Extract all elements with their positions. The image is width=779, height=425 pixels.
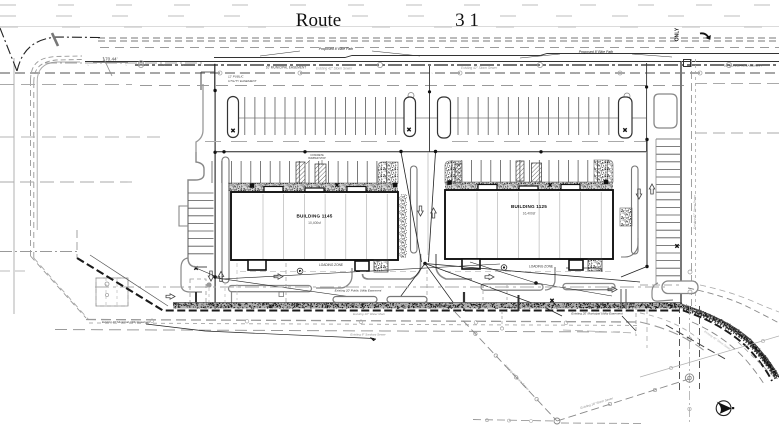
svg-text:›: › <box>479 72 480 76</box>
svg-text:10' MUNICIPAL EASEMENT: 10' MUNICIPAL EASEMENT <box>266 66 307 70</box>
svg-text:LOADING ZONE: LOADING ZONE <box>529 265 553 269</box>
svg-text:›: › <box>335 72 336 76</box>
svg-text:Existing 10" Water Main: Existing 10" Water Main <box>353 312 385 316</box>
svg-text:UTILITY EASEMENT: UTILITY EASEMENT <box>228 79 258 83</box>
svg-text:ONLY: ONLY <box>675 27 681 41</box>
svg-text:Route: Route <box>296 10 341 31</box>
svg-text:10' MUNICIPAL EASEMENT: 10' MUNICIPAL EASEMENT <box>724 64 762 68</box>
svg-text:Proposed 8' Bike Path: Proposed 8' Bike Path <box>319 47 354 51</box>
svg-text:Proposed 8' Bike Path: Proposed 8' Bike Path <box>579 50 614 54</box>
svg-text:Existing 42" Storm Sewer: Existing 42" Storm Sewer <box>693 194 697 229</box>
svg-text:›: › <box>575 72 576 76</box>
svg-text:Existing 42" Storm Sewer: Existing 42" Storm Sewer <box>461 66 498 70</box>
svg-text:10,400sf: 10,400sf <box>308 221 321 225</box>
svg-text:3 1: 3 1 <box>455 10 479 31</box>
svg-text:›: › <box>182 63 183 67</box>
svg-text:›: › <box>87 63 88 67</box>
svg-text:Existing 20' Municipal Utility: Existing 20' Municipal Utility Easement <box>102 320 150 324</box>
svg-text:›: › <box>125 63 126 67</box>
svg-text:›: › <box>239 72 240 76</box>
svg-text:BUILDING 1125: BUILDING 1125 <box>511 204 547 209</box>
svg-text:›: › <box>383 72 384 76</box>
svg-text:›: › <box>527 72 528 76</box>
svg-text:›: › <box>163 63 164 67</box>
svg-text:BUMPER STOP: BUMPER STOP <box>308 157 326 160</box>
svg-text:LOADING ZONE: LOADING ZONE <box>319 263 343 267</box>
svg-text:12' PUBLIC: 12' PUBLIC <box>228 75 244 79</box>
svg-text:Existing 20' Municipal Utility: Existing 20' Municipal Utility Easement <box>571 312 622 316</box>
svg-text:›: › <box>431 72 432 76</box>
svg-text:BUILDING 1145: BUILDING 1145 <box>296 214 332 219</box>
svg-text:Existing 8" Sanitary Sewer: Existing 8" Sanitary Sewer <box>350 333 386 337</box>
svg-text:›: › <box>144 63 145 67</box>
svg-text:16,400sf: 16,400sf <box>523 212 536 216</box>
svg-text:Existing 20' Public Utility Ea: Existing 20' Public Utility Easement <box>335 289 382 293</box>
svg-text:›: › <box>287 72 288 76</box>
svg-text:Existing 42" Storm Sewer: Existing 42" Storm Sewer <box>316 67 353 71</box>
svg-text:›: › <box>201 63 202 67</box>
svg-text:›: › <box>623 72 624 76</box>
